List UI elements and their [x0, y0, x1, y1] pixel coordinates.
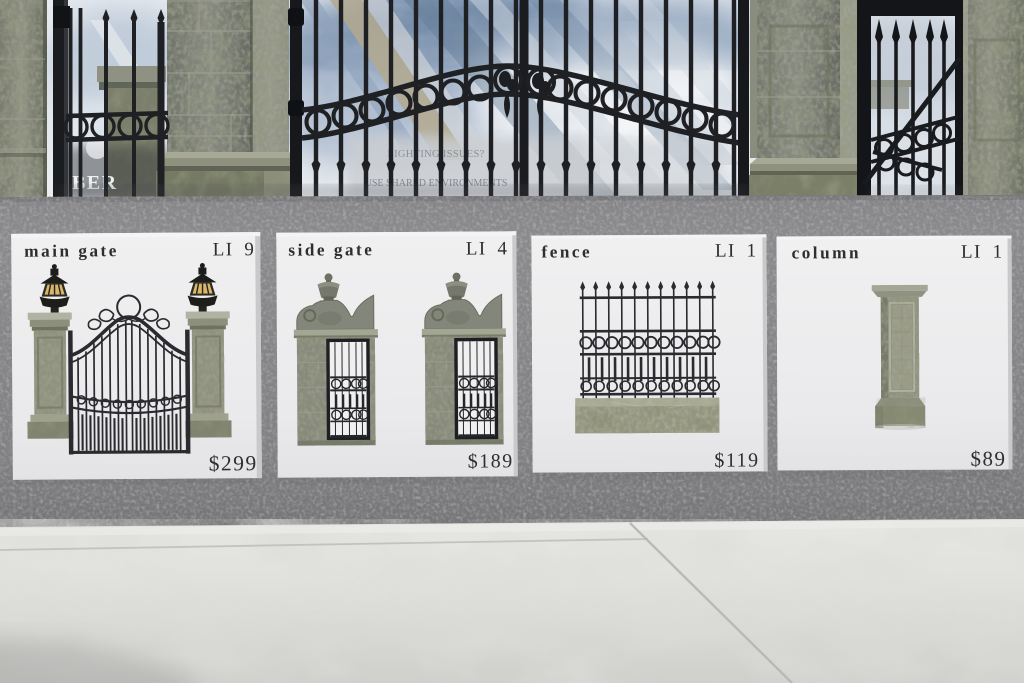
svg-text:fence: fence: [541, 242, 592, 261]
svg-text:LI 4: LI 4: [466, 238, 509, 259]
svg-text:$119: $119: [714, 449, 759, 471]
svg-text:$299: $299: [209, 451, 258, 475]
svg-text:LI 1: LI 1: [715, 240, 758, 261]
svg-text:LI 1: LI 1: [961, 242, 1004, 263]
svg-text:LI 9: LI 9: [213, 239, 256, 260]
svg-text:column: column: [792, 243, 862, 262]
svg-text:main gate: main gate: [24, 241, 119, 261]
svg-text:LIGHTING ISSUES?: LIGHTING ISSUES?: [387, 149, 484, 160]
svg-text:side gate: side gate: [288, 240, 374, 260]
svg-text:$89: $89: [970, 447, 1006, 471]
svg-text:$189: $189: [468, 450, 514, 472]
